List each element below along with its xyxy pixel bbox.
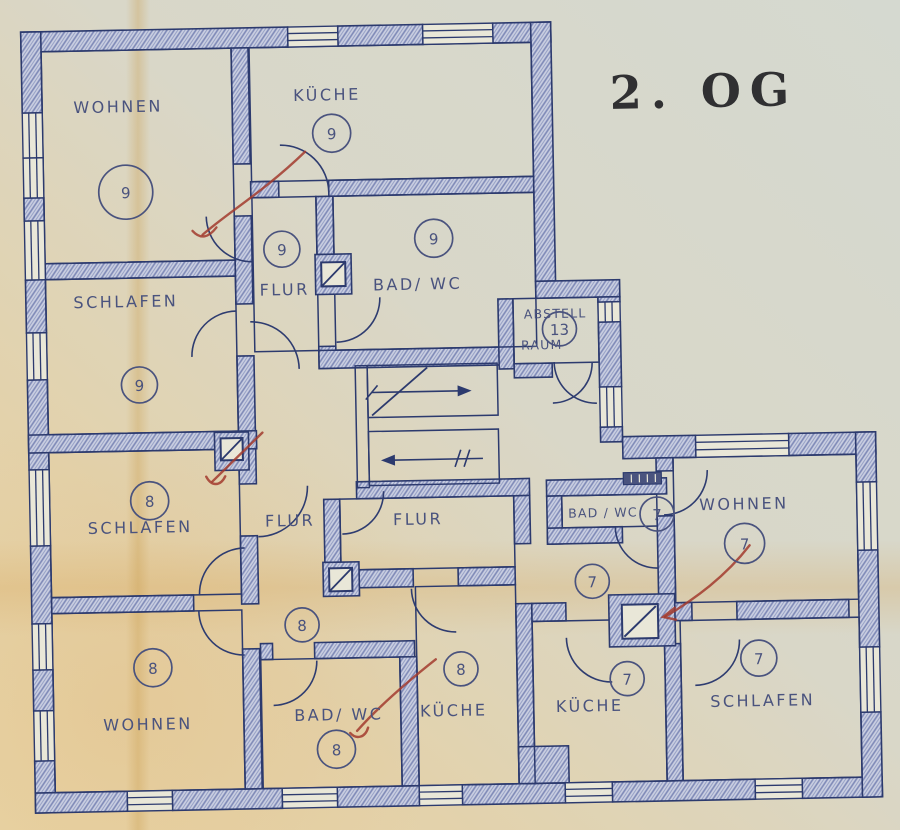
- floor-plan-svg: 2. OG WOHNEN 9 KÜCHE 9 SCHLAFEN 9 FLUR 9…: [0, 0, 900, 830]
- room-label-wohnen-9: WOHNEN: [73, 96, 163, 117]
- floor-plan-photo: 2. OG WOHNEN 9 KÜCHE 9 SCHLAFEN 9 FLUR 9…: [0, 0, 900, 830]
- window-symbol: [600, 387, 623, 427]
- svg-text:7: 7: [587, 573, 597, 591]
- room-label-flur-9: FLUR: [259, 280, 310, 300]
- svg-text:8: 8: [332, 741, 342, 759]
- svg-text:9: 9: [277, 241, 287, 259]
- svg-text:7: 7: [622, 671, 632, 689]
- svg-text:9: 9: [429, 230, 439, 248]
- floor-title: 2. OG: [609, 62, 798, 120]
- room-label-schlafen-8: SCHLAFEN: [88, 517, 193, 538]
- room-label-abstellraum-line1: ABSTELL: [524, 305, 587, 321]
- radiator-symbol: [623, 472, 661, 485]
- window-symbol: [755, 778, 802, 799]
- window-symbol: [860, 647, 881, 712]
- window-symbol: [565, 782, 612, 803]
- svg-text:8: 8: [148, 660, 158, 678]
- svg-text:7: 7: [740, 535, 750, 553]
- room-label-schlafen-9: SCHLAFEN: [73, 291, 178, 312]
- window-symbol: [26, 333, 47, 380]
- svg-text:9: 9: [121, 184, 131, 202]
- svg-text:9: 9: [135, 377, 145, 395]
- svg-text:8: 8: [145, 493, 155, 511]
- window-symbol: [419, 785, 462, 806]
- svg-text:7: 7: [652, 506, 662, 524]
- room-label-wohnen-8: WOHNEN: [103, 714, 193, 735]
- room-label-kueche-7: KÜCHE: [556, 696, 624, 716]
- svg-text:8: 8: [456, 661, 466, 679]
- svg-text:7: 7: [754, 650, 764, 668]
- window-symbol: [282, 787, 337, 808]
- window-symbol: [29, 470, 50, 546]
- room-label-kueche-9: KÜCHE: [293, 85, 361, 105]
- window-symbol: [22, 113, 43, 158]
- room-label-bad-wc-9: BAD/ WC: [373, 274, 463, 295]
- window-symbol: [34, 711, 55, 761]
- paper-fold-crease: [126, 0, 150, 830]
- room-label-flur-8: FLUR: [265, 511, 316, 531]
- window-symbol: [598, 302, 620, 322]
- svg-text:9: 9: [327, 125, 337, 143]
- svg-text:8: 8: [297, 617, 307, 635]
- room-label-wohnen-7: WOHNEN: [699, 494, 789, 515]
- window-symbol: [423, 23, 493, 44]
- room-label-bad-wc-7: BAD / WC: [568, 504, 638, 520]
- room-label-schlafen-7: SCHLAFEN: [710, 690, 815, 711]
- window-symbol: [23, 158, 44, 198]
- room-label-abstellraum-line2: RAUM: [521, 337, 563, 353]
- room-label-flur-center: FLUR: [393, 509, 444, 529]
- room-label-bad-wc-8: BAD/ WC: [294, 704, 384, 725]
- room-label-kueche-8: KÜCHE: [420, 700, 488, 720]
- window-symbol: [288, 26, 338, 47]
- window-symbol: [24, 221, 45, 280]
- window-symbol: [856, 482, 877, 550]
- window-symbol: [696, 434, 789, 458]
- window-symbol: [127, 790, 172, 811]
- window-symbol: [32, 624, 53, 670]
